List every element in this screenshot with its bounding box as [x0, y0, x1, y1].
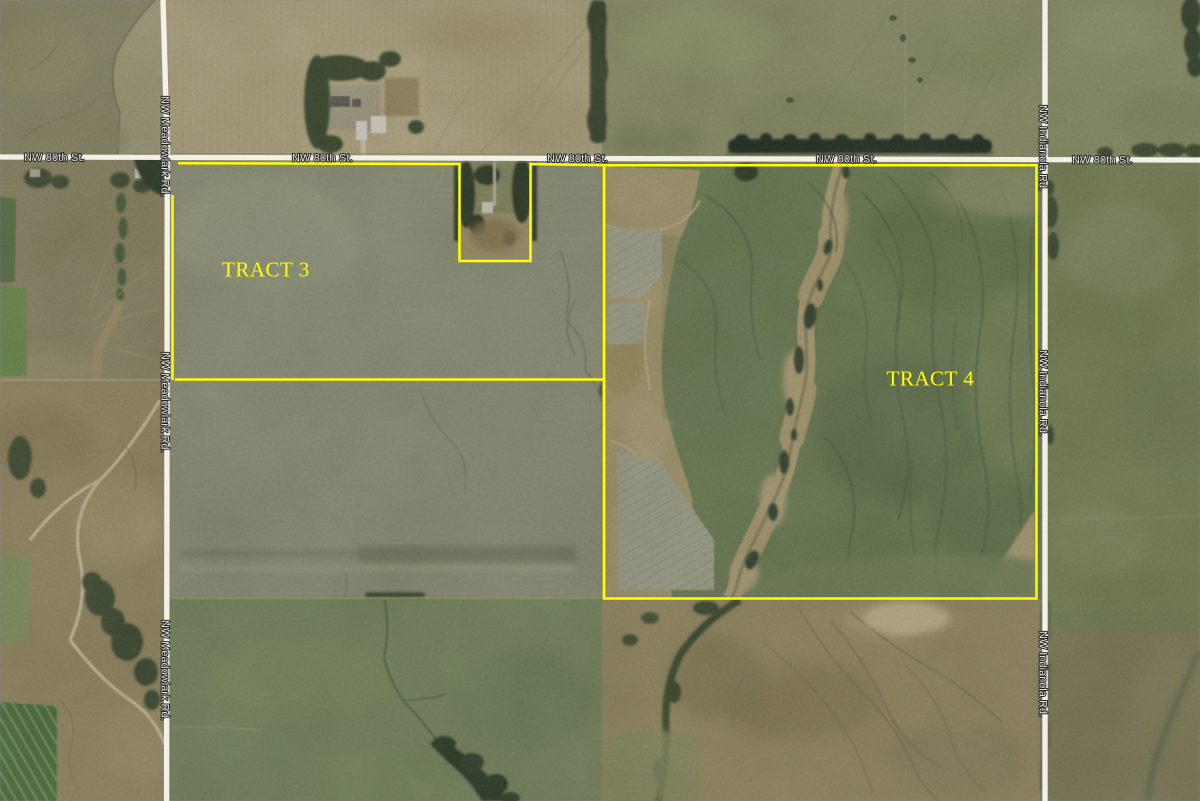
- svg-text:NW 80th St.: NW 80th St.: [547, 153, 608, 165]
- svg-text:NW 80th St.: NW 80th St.: [292, 152, 353, 164]
- svg-text:NW Indianola Rd.: NW Indianola Rd.: [1037, 631, 1049, 717]
- svg-text:NW 80th St.: NW 80th St.: [24, 152, 85, 164]
- svg-text:NW Indianola Rd.: NW Indianola Rd.: [1037, 350, 1049, 436]
- svg-text:NW Meadowlark Rd.: NW Meadowlark Rd.: [159, 352, 171, 453]
- svg-text:NW Indianola Rd.: NW Indianola Rd.: [1037, 105, 1049, 191]
- svg-text:TRACT 3: TRACT 3: [222, 258, 310, 282]
- svg-text:TRACT 4: TRACT 4: [887, 367, 975, 391]
- svg-text:NW Meadowlark Rd.: NW Meadowlark Rd.: [159, 620, 171, 721]
- svg-text:NW 80th St.: NW 80th St.: [1072, 154, 1133, 166]
- svg-text:NW Meadowlark Rd.: NW Meadowlark Rd.: [159, 96, 171, 197]
- svg-text:NW 80th St.: NW 80th St.: [816, 154, 877, 166]
